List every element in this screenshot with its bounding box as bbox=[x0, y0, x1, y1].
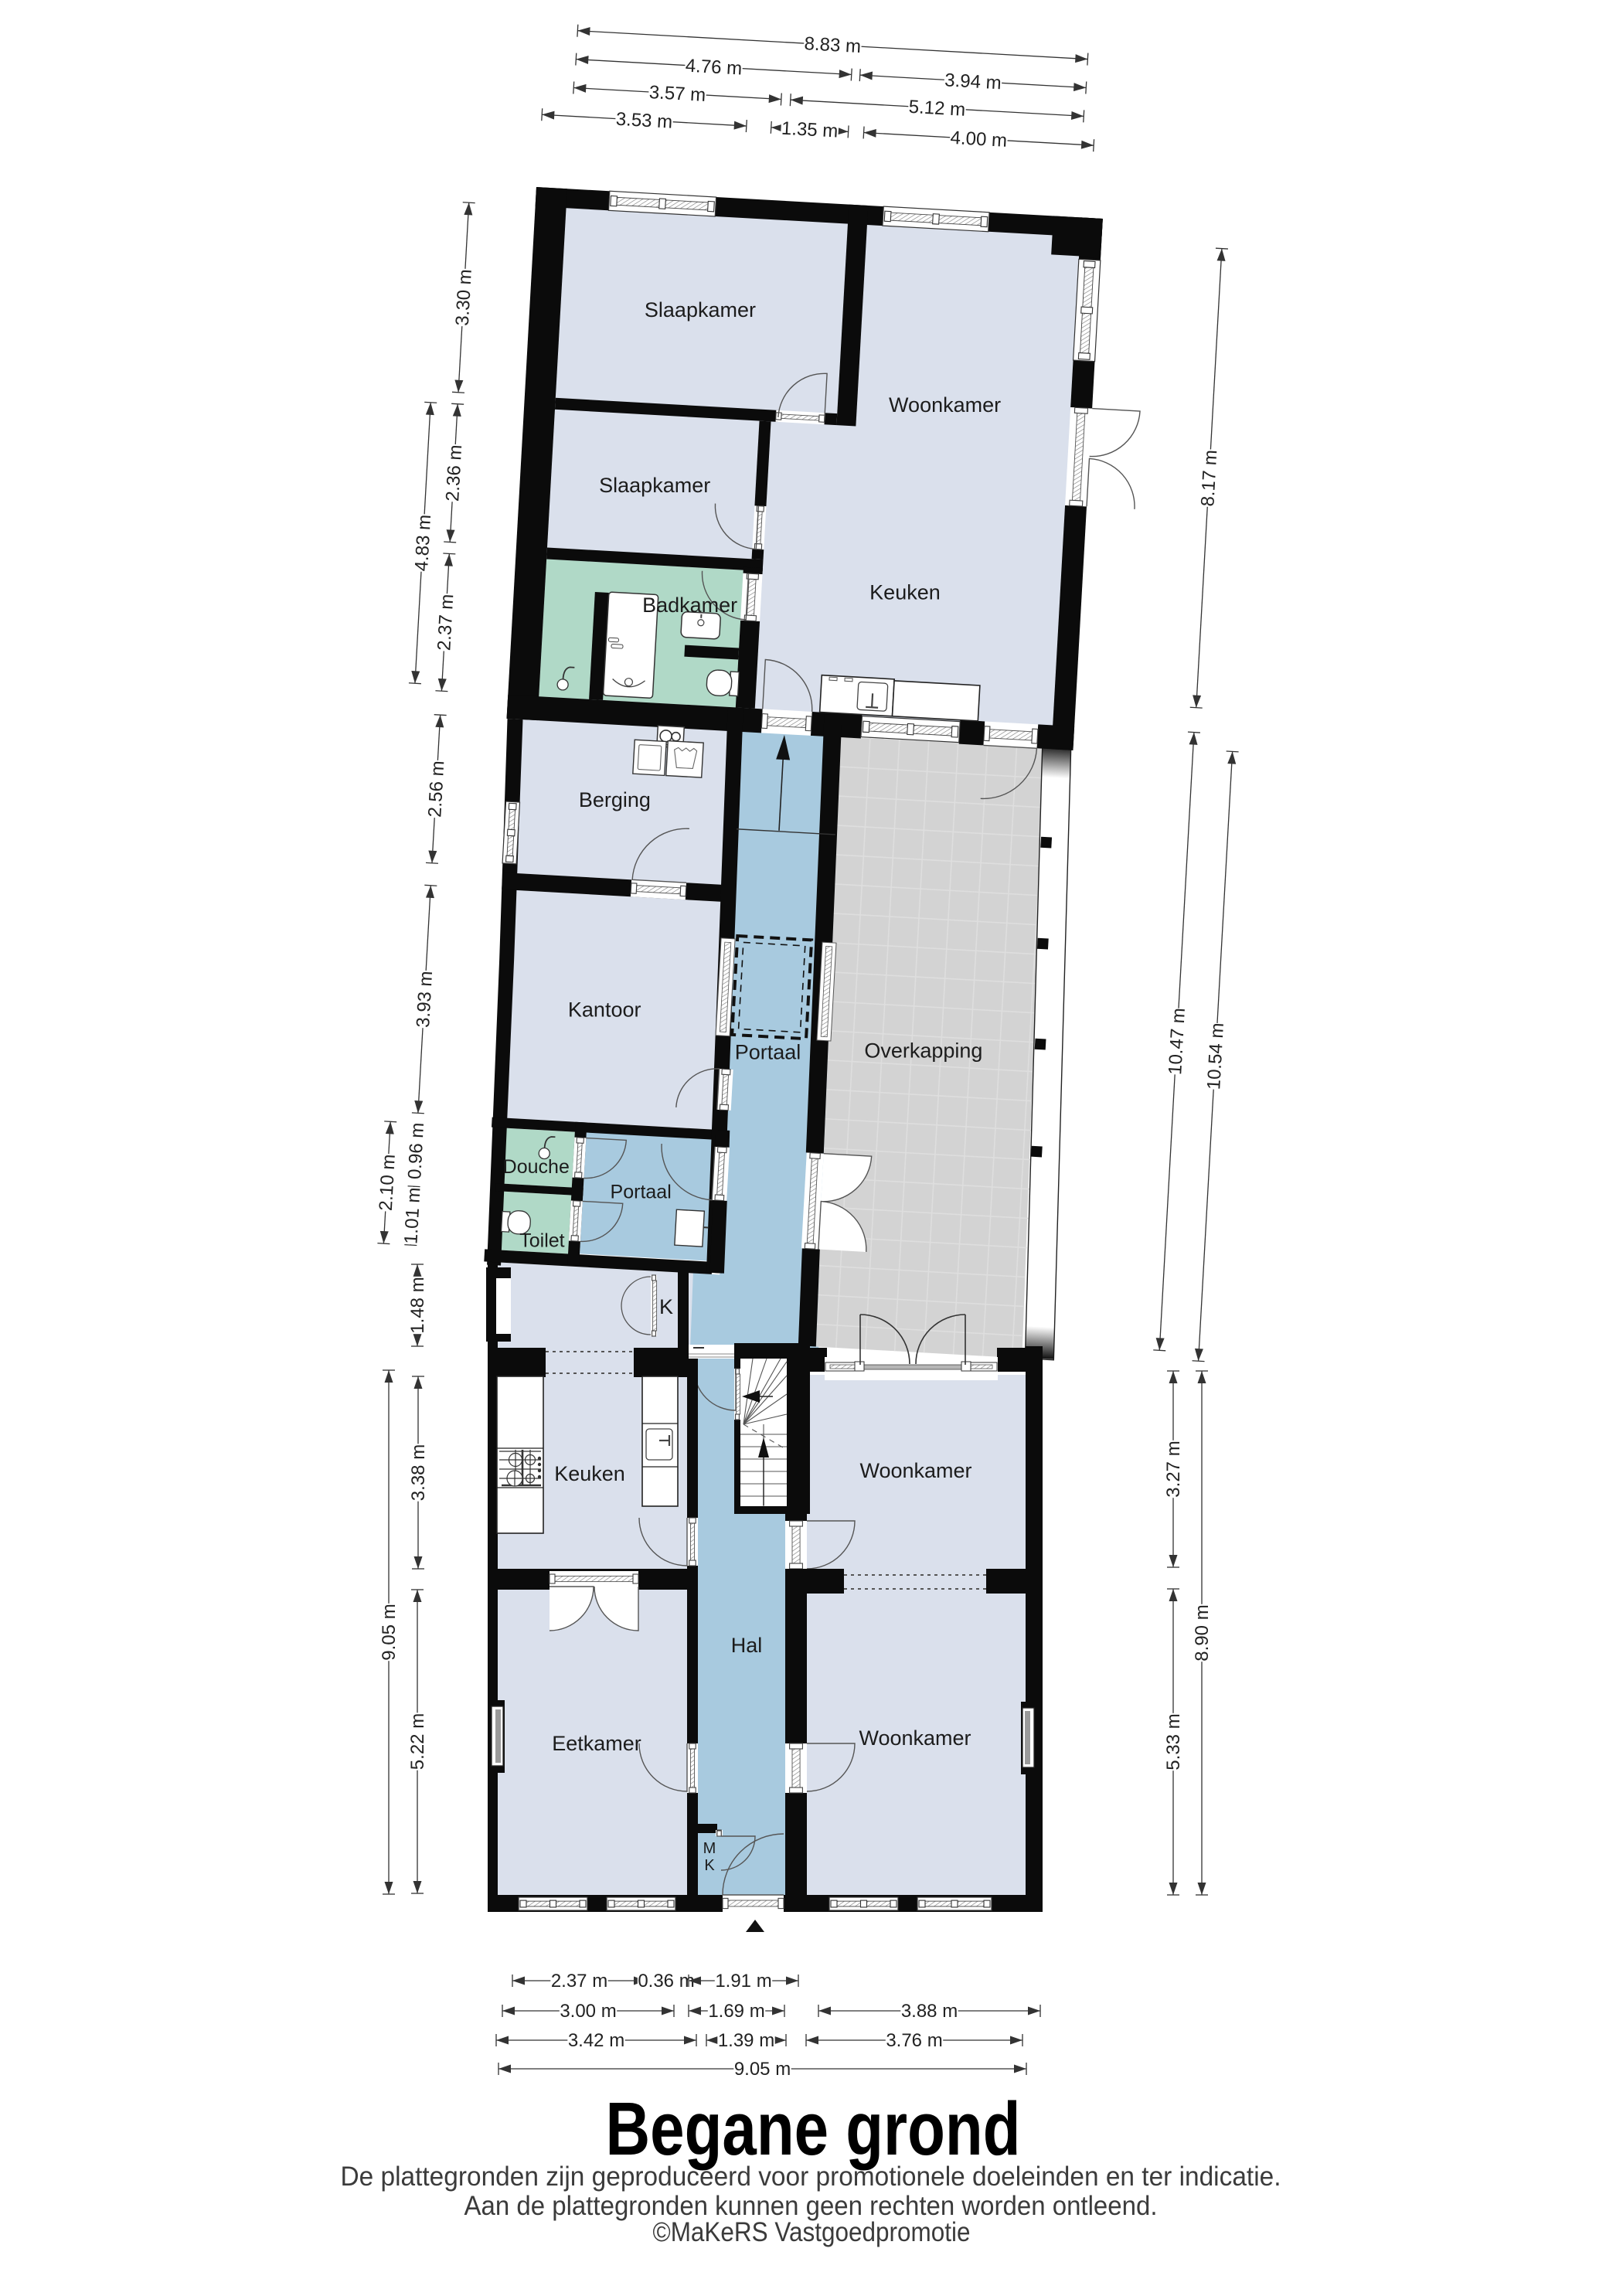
svg-text:3.38 m: 3.38 m bbox=[408, 1444, 429, 1501]
svg-text:3.27 m: 3.27 m bbox=[1163, 1441, 1184, 1497]
svg-text:Toilet: Toilet bbox=[519, 1230, 564, 1252]
svg-text:Kantoor: Kantoor bbox=[568, 998, 641, 1022]
svg-text:K: K bbox=[704, 1857, 715, 1874]
svg-text:Woonkamer: Woonkamer bbox=[859, 1726, 971, 1750]
svg-text:3.00 m: 3.00 m bbox=[560, 2001, 616, 2022]
svg-text:Berging: Berging bbox=[579, 788, 651, 811]
svg-text:0.96 m: 0.96 m bbox=[404, 1122, 428, 1180]
svg-text:1.01 m: 1.01 m bbox=[400, 1187, 424, 1245]
svg-text:5.22 m: 5.22 m bbox=[407, 1713, 428, 1770]
svg-text:1.39 m: 1.39 m bbox=[718, 2030, 774, 2051]
svg-text:4.76 m: 4.76 m bbox=[685, 56, 743, 80]
svg-text:Woonkamer: Woonkamer bbox=[889, 393, 1001, 417]
svg-text:Hal: Hal bbox=[731, 1634, 763, 1657]
svg-text:3.42 m: 3.42 m bbox=[568, 2030, 624, 2051]
svg-text:Slaapkamer: Slaapkamer bbox=[645, 298, 756, 321]
svg-text:4.83 m: 4.83 m bbox=[411, 514, 435, 572]
svg-text:Overkapping: Overkapping bbox=[864, 1039, 982, 1063]
svg-text:3.30 m: 3.30 m bbox=[452, 269, 476, 327]
svg-text:Woonkamer: Woonkamer bbox=[859, 1459, 971, 1482]
svg-text:1.48 m: 1.48 m bbox=[407, 1277, 428, 1333]
svg-text:3.88 m: 3.88 m bbox=[901, 2001, 958, 2022]
svg-text:2.37 m: 2.37 m bbox=[551, 1971, 607, 1992]
svg-text:Eetkamer: Eetkamer bbox=[552, 1732, 641, 1755]
svg-text:9.05 m: 9.05 m bbox=[379, 1604, 400, 1660]
svg-text:Portaal: Portaal bbox=[611, 1182, 672, 1203]
svg-text:8.90 m: 8.90 m bbox=[1192, 1604, 1213, 1661]
svg-text:5.12 m: 5.12 m bbox=[908, 97, 966, 121]
svg-text:4.00 m: 4.00 m bbox=[950, 128, 1008, 151]
svg-text:Slaapkamer: Slaapkamer bbox=[599, 474, 710, 497]
svg-text:8.17 m: 8.17 m bbox=[1197, 449, 1221, 507]
svg-text:1.35 m: 1.35 m bbox=[781, 118, 839, 142]
svg-text:3.93 m: 3.93 m bbox=[413, 971, 437, 1029]
svg-text:1.91 m: 1.91 m bbox=[715, 1971, 771, 1992]
svg-text:1.69 m: 1.69 m bbox=[708, 2001, 764, 2022]
svg-text:0.36 m: 0.36 m bbox=[638, 1971, 694, 1992]
svg-text:3.57 m: 3.57 m bbox=[648, 82, 706, 106]
svg-text:2.37 m: 2.37 m bbox=[434, 594, 458, 651]
svg-text:Badkamer: Badkamer bbox=[642, 594, 737, 617]
svg-text:2.56 m: 2.56 m bbox=[424, 760, 448, 818]
svg-text:©MaKeRS Vastgoedpromotie: ©MaKeRS Vastgoedpromotie bbox=[653, 2217, 971, 2247]
svg-text:9.05 m: 9.05 m bbox=[734, 2059, 791, 2080]
svg-text:8.83 m: 8.83 m bbox=[804, 33, 862, 57]
svg-text:3.53 m: 3.53 m bbox=[615, 109, 673, 133]
svg-text:Douche: Douche bbox=[503, 1156, 570, 1178]
svg-text:10.47 m: 10.47 m bbox=[1165, 1007, 1189, 1075]
svg-text:2.10 m: 2.10 m bbox=[376, 1154, 400, 1212]
svg-text:Begane grond: Begane grond bbox=[606, 2087, 1021, 2171]
svg-text:Keuken: Keuken bbox=[554, 1462, 625, 1485]
svg-text:Keuken: Keuken bbox=[869, 580, 941, 604]
svg-text:De plattegronden zijn geproduc: De plattegronden zijn geproduceerd voor … bbox=[341, 2162, 1281, 2192]
svg-text:5.33 m: 5.33 m bbox=[1163, 1713, 1184, 1770]
svg-text:Portaal: Portaal bbox=[735, 1040, 801, 1063]
svg-text:2.36 m: 2.36 m bbox=[442, 444, 466, 502]
svg-text:3.94 m: 3.94 m bbox=[944, 70, 1002, 94]
svg-text:3.76 m: 3.76 m bbox=[886, 2030, 942, 2051]
svg-text:K: K bbox=[659, 1295, 673, 1318]
svg-text:M: M bbox=[703, 1840, 716, 1857]
svg-text:10.54 m: 10.54 m bbox=[1203, 1022, 1228, 1090]
